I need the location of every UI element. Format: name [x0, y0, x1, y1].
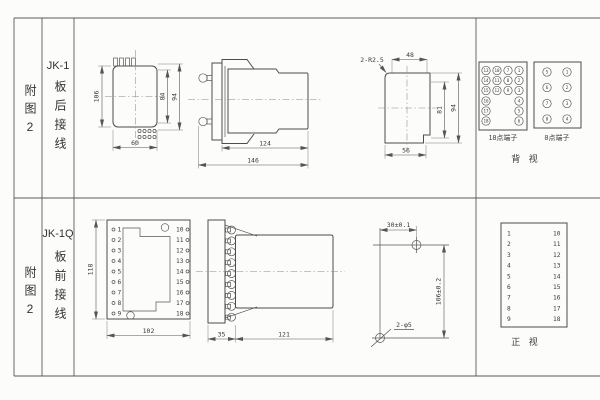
- dim-94-cutout: 94: [450, 104, 458, 112]
- table-number: 1: [507, 231, 511, 238]
- dim-121: 121: [278, 331, 290, 339]
- terminal-number: 17: [483, 109, 489, 114]
- table-number: 13: [553, 263, 561, 270]
- terminal-number: 18: [483, 119, 489, 124]
- dim-94: 94: [171, 93, 179, 101]
- terminal-number: 8: [507, 78, 510, 83]
- dim-81: 81: [436, 106, 444, 114]
- terminal-number: 1: [118, 227, 122, 234]
- terminal-number: 18: [176, 311, 184, 318]
- terminal-block-8: 5 1 6 2 7 3 8 4 8点端子: [534, 62, 581, 142]
- dim-60: 60: [131, 139, 139, 147]
- table-number: 9: [507, 316, 511, 323]
- terminal-number: 4: [118, 258, 122, 265]
- terminal-number: 11: [176, 237, 184, 244]
- dim-48: 48: [406, 51, 414, 59]
- callout-holes: 2-φ5: [396, 321, 412, 329]
- terminal-number: 1: [566, 70, 569, 75]
- table-number: 17: [553, 305, 561, 312]
- jk1-panel-cutout-drawing: 2-R2.5 48 81 94 56: [360, 51, 462, 159]
- terminal-number: 5: [546, 70, 549, 75]
- terminal-number: 16: [483, 99, 489, 104]
- dim-102: 102: [143, 327, 155, 335]
- callout-radius: 2-R2.5: [360, 56, 384, 64]
- table-number: 2: [507, 241, 511, 248]
- terminal-number: 8: [546, 117, 549, 122]
- terminal-number: 6: [118, 279, 122, 286]
- terminal-number: 4: [518, 99, 521, 104]
- terminal-number: 6: [518, 119, 521, 124]
- drilling-plan-drawing: 30±0.1 106±0.2 2-φ5: [371, 221, 449, 347]
- table-number: 11: [553, 241, 561, 248]
- dim-106: 106: [93, 91, 101, 103]
- dim-118: 118: [87, 264, 95, 276]
- terminal-number: 14: [483, 78, 489, 83]
- terminal-number: 17: [176, 300, 184, 307]
- table-number: 8: [507, 305, 511, 312]
- dim-30: 30±0.1: [387, 221, 411, 229]
- table-number: 5: [507, 273, 511, 280]
- jk1q-front-view-drawing: 1 2 3 4 5 6 7 8 9 10 11 12 13 14 15 16 1…: [87, 220, 191, 339]
- terminal-number: 11: [494, 78, 500, 83]
- terminal-number: 15: [176, 279, 184, 286]
- table-number: 16: [553, 295, 561, 302]
- dim-124: 124: [259, 140, 271, 148]
- terminal-number: 15: [483, 88, 489, 93]
- table-number: 3: [507, 252, 511, 259]
- dim-56: 56: [402, 147, 410, 155]
- terminal-block-18-label: 18点端子: [489, 133, 518, 142]
- table-number: 10: [553, 231, 561, 238]
- terminal-number: 7: [507, 68, 510, 73]
- wiring-label-row2: 板前接线: [52, 250, 69, 326]
- jk1-rear-view-drawing: 106 60 84 94: [93, 50, 184, 151]
- terminal-number: 2: [518, 78, 521, 83]
- terminal-block-18: 13 10 7 1 14 11 8 2 15 12 9 3 16 4 17 5 …: [479, 62, 527, 142]
- jk1q-side-view-drawing: 35 121: [196, 220, 345, 343]
- terminal-block-8-label: 8点端子: [545, 133, 570, 142]
- terminal-number: 16: [176, 290, 184, 297]
- dim-146: 146: [247, 157, 259, 165]
- terminal-number: 13: [483, 68, 489, 73]
- terminal-number: 10: [176, 227, 184, 234]
- wiring-label-row1: 板后接线: [52, 80, 69, 156]
- terminal-number: 3: [518, 88, 521, 93]
- terminal-number: 3: [118, 248, 122, 255]
- table-number: 7: [507, 295, 511, 302]
- technical-drawing: 106 60 84 94: [0, 0, 600, 400]
- rear-view-label: 背 视: [511, 153, 541, 164]
- model-label-jk1: JK-1: [42, 60, 74, 72]
- terminal-number: 12: [176, 248, 184, 255]
- terminal-number: 13: [176, 258, 184, 265]
- terminal-number: 9: [507, 88, 510, 93]
- terminal-number: 7: [118, 290, 122, 297]
- terminal-number: 3: [566, 101, 569, 106]
- table-number: 6: [507, 284, 511, 291]
- table-number: 18: [553, 316, 561, 323]
- terminal-number: 6: [546, 85, 549, 90]
- figure-label-row1: 附图2: [22, 84, 39, 140]
- dim-35: 35: [218, 331, 226, 339]
- jk1-side-view-drawing: 124 146: [188, 60, 321, 169]
- drawing-sheet: 106 60 84 94: [0, 0, 600, 400]
- terminal-number: 5: [118, 269, 122, 276]
- terminal-number: 14: [176, 269, 184, 276]
- terminal-number: 9: [118, 311, 122, 318]
- terminal-number: 5: [518, 109, 521, 114]
- dim-84: 84: [159, 93, 167, 101]
- model-label-jk1q: JK-1Q: [39, 228, 77, 240]
- terminal-number: 8: [118, 300, 122, 307]
- terminal-number: 1: [518, 68, 521, 73]
- table-number: 14: [553, 273, 561, 280]
- terminal-number: 12: [494, 88, 500, 93]
- terminal-number: 4: [566, 117, 569, 122]
- table-number: 15: [553, 284, 561, 291]
- figure-label-row2: 附图2: [22, 266, 39, 322]
- terminal-number: 10: [494, 68, 500, 73]
- front-view-label: 正 视: [511, 336, 541, 347]
- terminal-number: 2: [566, 85, 569, 90]
- table-number: 12: [553, 252, 561, 259]
- terminal-number: 7: [546, 101, 549, 106]
- table-number: 4: [507, 263, 511, 270]
- terminal-number-table: 1 2 3 4 5 6 7 8 9 10 11 12 13 14 15 16 1…: [501, 223, 567, 327]
- terminal-number: 2: [118, 237, 122, 244]
- dim-106-tol: 106±0.2: [435, 278, 443, 305]
